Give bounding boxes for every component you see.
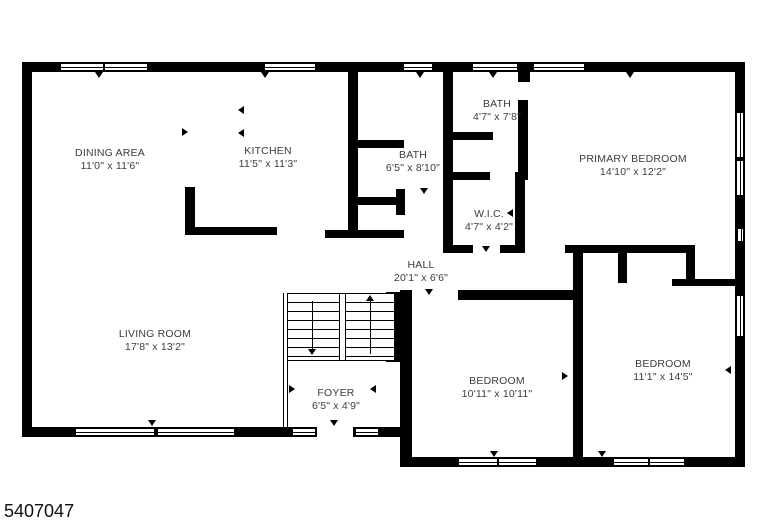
wall-segment [348,72,358,238]
wall-segment [565,245,695,253]
staircase [287,293,395,361]
wall-segment [500,245,525,253]
room-dims: 6'5" x 4'9" [312,400,360,413]
window-symbol [736,295,744,337]
window-symbol [458,458,498,466]
room-label-bedroom-left: BEDROOM 10'11" x 10'11" [462,375,533,401]
window-tick-icon [489,72,497,78]
room-name: BATH [386,149,440,162]
room-dims: 4'7" x 4'2" [465,221,513,234]
room-label-foyer: FOYER 6'5" x 4'9" [312,387,360,413]
window-symbol [403,63,433,71]
room-label-bedroom-right: BEDROOM 11'1" x 14'5" [633,358,692,384]
door-tick-icon [238,129,244,137]
room-name: BEDROOM [462,375,533,388]
wall-segment [443,132,493,140]
room-name: PRIMARY BEDROOM [579,153,687,166]
door-tick-icon [238,106,244,114]
wall-segment [515,172,525,253]
window-symbol [75,428,155,436]
room-label-living-room: LIVING ROOM 17'8" x 13'2" [119,328,191,354]
room-name: DINING AREA [75,147,145,160]
window-tick-icon [148,420,156,426]
stair-up-arrow-icon [366,295,374,301]
window-symbol [736,160,744,196]
wall-segment [618,253,627,283]
room-dims: 20'1" x 6'6" [394,272,448,285]
window-symbol [498,458,537,466]
stair-down-arrow-icon [312,301,313,349]
room-dims: 4'7" x 7'8" [473,111,521,124]
wall-segment [672,279,745,286]
door-tick-icon [182,128,188,136]
room-label-hall: HALL 20'1" x 6'6" [394,259,448,285]
wall-segment [443,62,453,245]
wall-segment [22,62,32,437]
wall-segment [518,62,530,82]
room-label-primary-bedroom: PRIMARY BEDROOM 14'10" x 12'2" [579,153,687,179]
window-tick-icon [416,72,424,78]
room-dims: 10'11" x 10'11" [462,388,533,401]
window-symbol [533,63,585,71]
wall-segment [325,230,404,238]
room-name: BEDROOM [633,358,692,371]
floor-plan: DINING AREA 11'0" x 11'6" KITCHEN 11'5" … [0,0,768,530]
room-name: HALL [394,259,448,272]
window-symbol [104,63,148,71]
room-label-bath-main: BATH 6'5" x 8'10" [386,149,440,175]
room-dims: 11'0" x 11'6" [75,160,145,173]
window-symbol [472,63,518,71]
door-tick-icon [425,289,433,295]
wall-segment [453,172,490,180]
window-tick-icon [95,72,103,78]
wall-segment [573,253,583,467]
door-tick-icon [444,209,450,217]
wall-segment [443,245,473,253]
room-label-dining-area: DINING AREA 11'0" x 11'6" [75,147,145,173]
window-symbol [264,63,316,71]
window-symbol [613,458,649,466]
room-label-bath-small: BATH 4'7" x 7'8" [473,98,521,124]
room-dims: 11'5" x 11'3" [239,158,298,171]
door-tick-icon [420,188,428,194]
window-symbol [157,428,235,436]
wall-segment [352,197,396,205]
room-name: W.I.C. [465,208,513,221]
door-tick-icon [370,385,376,393]
room-dims: 11'1" x 14'5" [633,371,692,384]
window-tick-icon [598,451,606,457]
room-dims: 6'5" x 8'10" [386,162,440,175]
window-tick-icon [261,72,269,78]
room-dims: 14'10" x 12'2" [579,166,687,179]
wall-segment [352,140,404,148]
window-symbol [355,428,379,436]
room-label-wic: W.I.C. 4'7" x 4'2" [465,208,513,234]
stair-up-arrow-icon [370,301,371,354]
room-dims: 17'8" x 13'2" [119,341,191,354]
stair-divider [339,294,346,360]
stair-down-arrow-icon [308,349,316,355]
room-name: BATH [473,98,521,111]
wall-segment [396,189,405,215]
window-symbol [737,228,744,242]
door-tick-icon [725,366,731,374]
window-symbol [649,458,685,466]
door-tick-icon [562,372,568,380]
window-tick-icon [490,451,498,457]
window-tick-icon [626,72,634,78]
window-symbol [292,428,316,436]
wall-segment [458,290,583,300]
door-tick-icon [482,246,490,252]
photo-id: 5407047 [4,501,74,522]
window-symbol [736,112,744,158]
door-tick-icon [289,385,295,393]
room-name: LIVING ROOM [119,328,191,341]
room-name: FOYER [312,387,360,400]
window-symbol [60,63,104,71]
front-door-tick-icon [330,420,338,426]
room-label-kitchen: KITCHEN 11'5" x 11'3" [239,145,298,171]
wall-segment [185,227,277,235]
room-name: KITCHEN [239,145,298,158]
